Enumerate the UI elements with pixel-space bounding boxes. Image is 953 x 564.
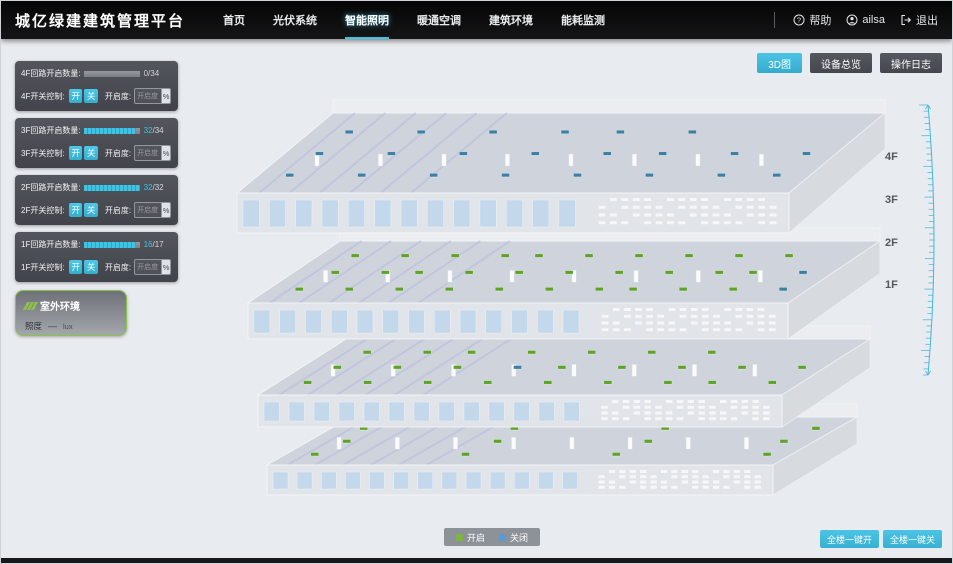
switch-control-label: 2F开关控制: bbox=[21, 205, 65, 216]
operation-log-button[interactable]: 操作日志 bbox=[880, 53, 942, 73]
circuit-count-value: 16/17 bbox=[144, 240, 164, 249]
nav-item-lighting[interactable]: 智能照明 bbox=[345, 1, 389, 39]
switch-off-button[interactable]: 关 bbox=[84, 146, 97, 160]
floor-panel-4f: 4F回路开启数量: 0/34 4F开关控制: 开 关 开启度: % bbox=[15, 61, 178, 111]
circuit-progress-bar bbox=[84, 71, 140, 77]
top-navigation-bar: 城亿绿建建筑管理平台 首页 光伏系统 智能照明 暖通空调 建筑环境 能耗监测 ?… bbox=[1, 1, 952, 39]
view-3d-button[interactable]: 3D图 bbox=[757, 53, 802, 73]
percent-button[interactable]: % bbox=[161, 89, 170, 103]
nav-item-hvac[interactable]: 暖通空调 bbox=[417, 1, 461, 39]
help-icon: ? bbox=[793, 14, 805, 26]
floor-zoom-scale bbox=[904, 99, 952, 381]
light-status-legend: 开启 关闭 bbox=[444, 528, 540, 546]
logout-icon bbox=[900, 14, 912, 26]
dim-level-input[interactable] bbox=[135, 146, 161, 160]
floor-panel-1f: 1F回路开启数量: 16/17 1F开关控制: 开 关 开启度: % bbox=[15, 232, 178, 282]
help-link[interactable]: ? 帮助 bbox=[793, 12, 831, 28]
switch-control-label: 1F开关控制: bbox=[21, 262, 65, 273]
nav-item-energy[interactable]: 能耗监测 bbox=[561, 1, 605, 39]
switch-off-button[interactable]: 关 bbox=[84, 260, 97, 274]
switch-on-button[interactable]: 开 bbox=[69, 260, 82, 274]
circuit-count-label: 4F回路开启数量: bbox=[21, 68, 81, 79]
header-user-area: ? 帮助 ailsa 退出 bbox=[774, 12, 938, 28]
device-overview-button[interactable]: 设备总览 bbox=[810, 53, 872, 73]
percent-button[interactable]: % bbox=[161, 146, 170, 160]
switch-control-label: 3F开关控制: bbox=[21, 148, 65, 159]
floor-axis-label-1f: 1F bbox=[885, 279, 898, 291]
legend-on-swatch bbox=[456, 534, 463, 541]
circuit-count-value: 32/32 bbox=[144, 183, 164, 192]
view-toolbar: 3D图 设备总览 操作日志 bbox=[757, 53, 942, 73]
main-nav: 首页 光伏系统 智能照明 暖通空调 建筑环境 能耗监测 bbox=[223, 1, 605, 39]
page-title: 城亿绿建建筑管理平台 bbox=[15, 10, 185, 31]
switch-on-button[interactable]: 开 bbox=[69, 203, 82, 217]
circuit-progress-bar bbox=[84, 242, 140, 248]
circuit-count-label: 1F回路开启数量: bbox=[21, 239, 81, 250]
dim-level-input[interactable] bbox=[135, 89, 161, 103]
illuminance-unit: lux bbox=[63, 322, 73, 331]
illuminance-value: — bbox=[48, 321, 57, 331]
app-window: 城亿绿建建筑管理平台 首页 光伏系统 智能照明 暖通空调 建筑环境 能耗监测 ?… bbox=[0, 0, 953, 564]
building-actions: 全楼一键开 全楼一键关 bbox=[820, 530, 942, 548]
circuit-count-label: 3F回路开启数量: bbox=[21, 125, 81, 136]
nav-item-environment[interactable]: 建筑环境 bbox=[489, 1, 533, 39]
svg-text:?: ? bbox=[797, 16, 801, 25]
all-off-button[interactable]: 全楼一键关 bbox=[883, 530, 942, 548]
outdoor-env-title: 室外环境 bbox=[40, 298, 80, 313]
switch-off-button[interactable]: 关 bbox=[84, 89, 97, 103]
outdoor-environment-panel: 室外环境 照度 — lux bbox=[15, 290, 127, 336]
switch-on-button[interactable]: 开 bbox=[69, 89, 82, 103]
circuit-count-value: 0/34 bbox=[144, 69, 160, 78]
dim-level-input[interactable] bbox=[135, 260, 161, 274]
legend-off-swatch bbox=[499, 534, 506, 541]
floor-axis-label-4f: 4F bbox=[885, 151, 898, 163]
dim-level-label: 开启度: bbox=[105, 91, 131, 102]
dim-level-label: 开启度: bbox=[105, 262, 131, 273]
user-account[interactable]: ailsa bbox=[846, 14, 885, 26]
circuit-progress-bar bbox=[84, 185, 140, 191]
floor-axis-label-3f: 3F bbox=[885, 194, 898, 206]
all-on-button[interactable]: 全楼一键开 bbox=[820, 530, 879, 548]
circuit-count-label: 2F回路开启数量: bbox=[21, 182, 81, 193]
nav-item-home[interactable]: 首页 bbox=[223, 1, 245, 39]
nav-item-pv[interactable]: 光伏系统 bbox=[273, 1, 317, 39]
dim-level-input[interactable] bbox=[135, 203, 161, 217]
legend-on-label: 开启 bbox=[467, 531, 485, 544]
floor-panel-2f: 2F回路开启数量: 32/32 2F开关控制: 开 关 开启度: % bbox=[15, 175, 178, 225]
switch-on-button[interactable]: 开 bbox=[69, 146, 82, 160]
bottom-frame bbox=[1, 558, 952, 563]
percent-button[interactable]: % bbox=[161, 203, 170, 217]
header-divider bbox=[774, 12, 775, 28]
circuit-count-value: 32/34 bbox=[144, 126, 164, 135]
dim-level-label: 开启度: bbox=[105, 148, 131, 159]
legend-off-label: 关闭 bbox=[510, 531, 528, 544]
illuminance-label: 照度 bbox=[25, 320, 42, 332]
floor-panel-3f: 3F回路开启数量: 32/34 3F开关控制: 开 关 开启度: % bbox=[15, 118, 178, 168]
user-icon bbox=[846, 14, 858, 26]
logout-button[interactable]: 退出 bbox=[900, 12, 938, 28]
dim-level-label: 开启度: bbox=[105, 205, 131, 216]
switch-control-label: 4F开关控制: bbox=[21, 91, 65, 102]
circuit-progress-bar bbox=[84, 128, 140, 134]
floor-axis-label-2f: 2F bbox=[885, 237, 898, 249]
outdoor-env-icon bbox=[25, 302, 36, 310]
percent-button[interactable]: % bbox=[161, 260, 170, 274]
switch-off-button[interactable]: 关 bbox=[84, 203, 97, 217]
